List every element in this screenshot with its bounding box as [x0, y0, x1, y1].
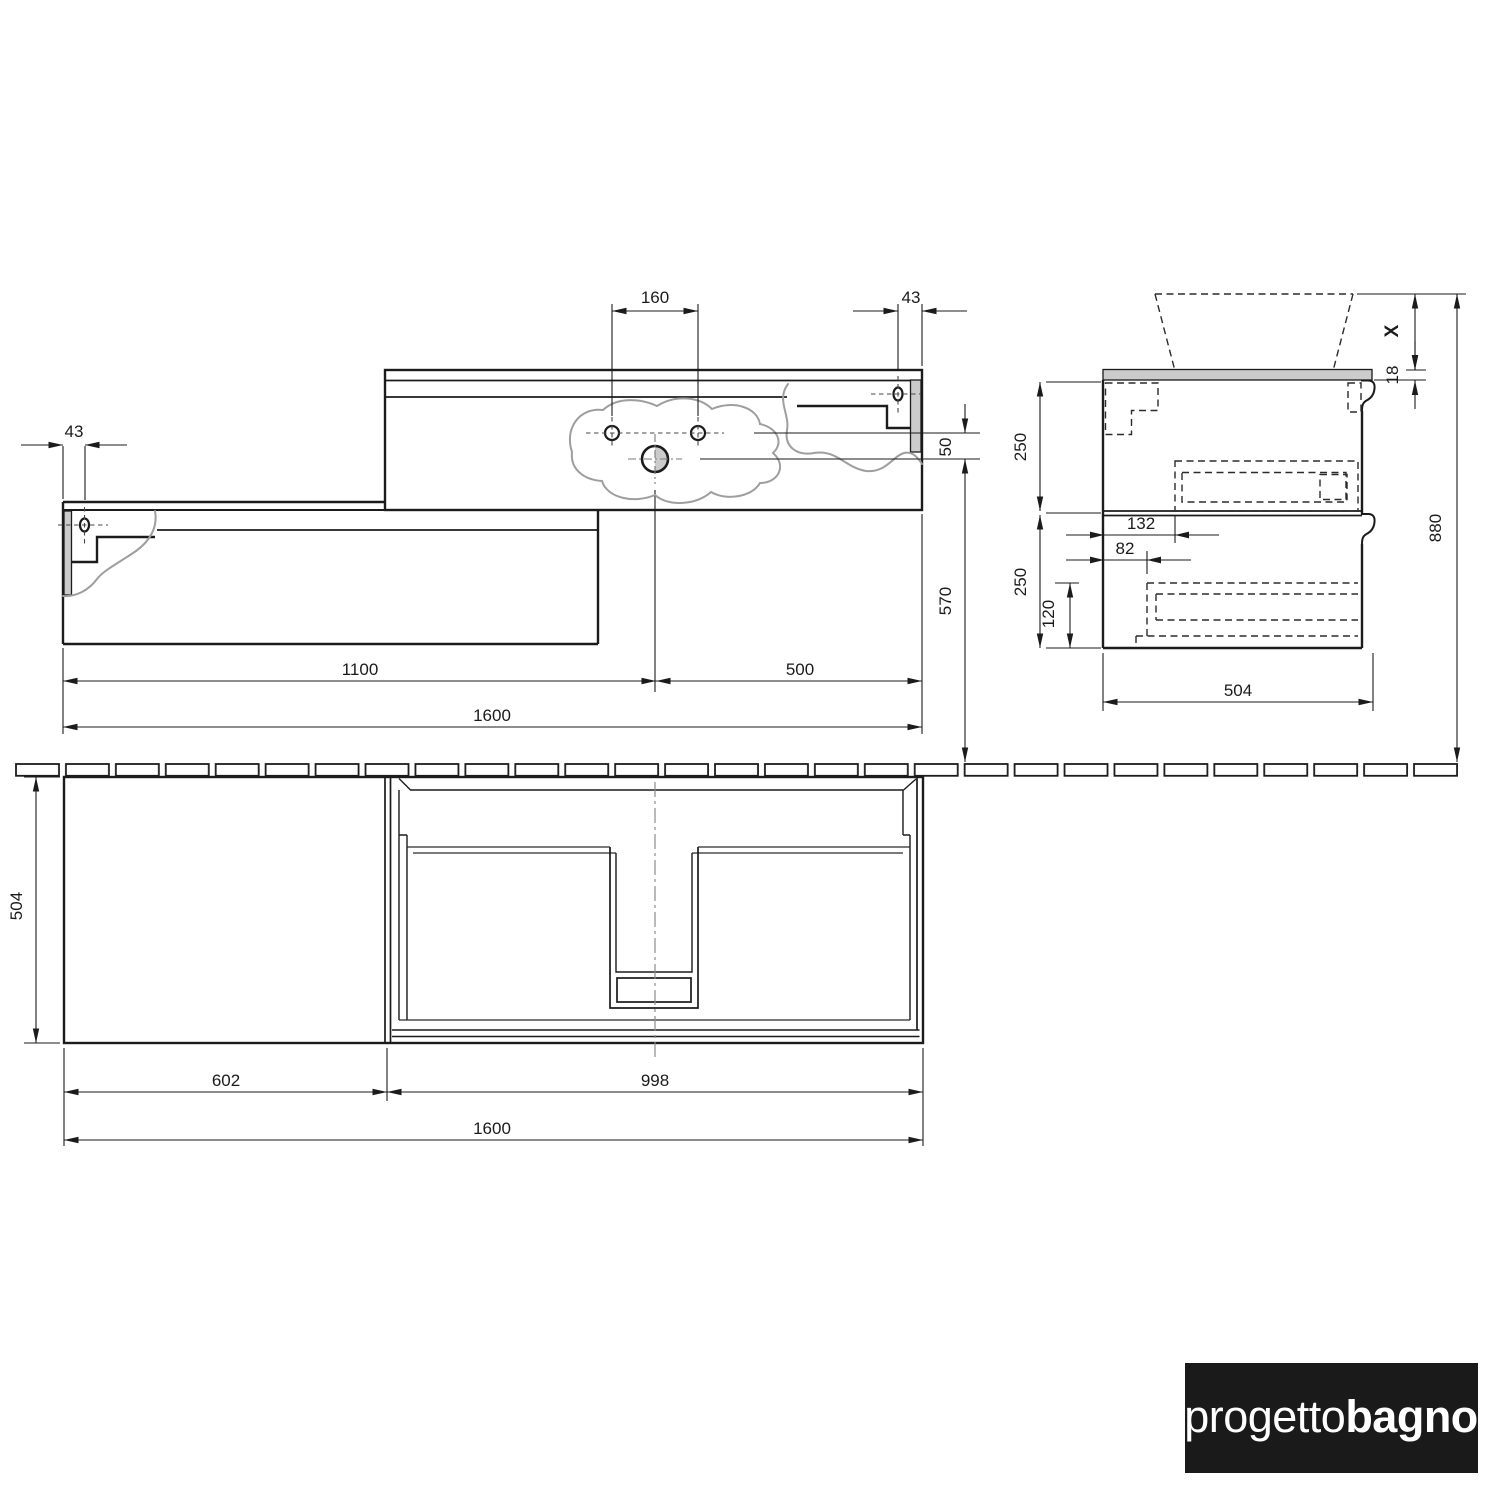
technical-drawing-sheet: 160 43 43 50 570 1100 500 1600: [0, 0, 1500, 1500]
dim-label-602: 602: [212, 1071, 240, 1090]
dim-label-18: 18: [1383, 366, 1402, 385]
dim-label-43-left: 43: [65, 422, 84, 441]
dim-label-43-right: 43: [902, 288, 921, 307]
dim-label-x: X: [1382, 324, 1403, 337]
wall-bracket-profile-right: [797, 406, 910, 428]
front-view: 160 43 43 50 570 1100 500 1600: [21, 288, 980, 762]
wall-tile-strip: [15, 763, 1463, 777]
handle-profile-top: [1361, 381, 1375, 412]
countertop-section: [1103, 370, 1372, 381]
basin-rim-left: [399, 779, 411, 1021]
dim-label-504-plan: 504: [7, 892, 26, 920]
dim-label-50: 50: [936, 438, 955, 457]
break-line-left: [63, 511, 156, 596]
logo: progettobagno: [1184, 1363, 1478, 1473]
break-line-blob: [570, 398, 780, 503]
dim-label-250-top: 250: [1011, 433, 1030, 461]
right-gable-section: [911, 380, 922, 452]
drain-recess: [617, 978, 691, 1002]
basin-bowl-outline: [610, 847, 698, 1008]
dim-label-250-bottom: 250: [1011, 568, 1030, 596]
vanity-technical-drawing: 160 43 43 50 570 1100 500 1600: [0, 0, 1500, 1500]
left-gable-section: [64, 511, 72, 595]
logo-wordmark: progettobagno: [1184, 1391, 1478, 1442]
plan-outline: [64, 777, 923, 1043]
dim-label-1100: 1100: [342, 660, 379, 679]
dim-label-880: 880: [1426, 514, 1445, 542]
side-view: 250 250 132 82 120 504 X 18 880: [1011, 294, 1466, 762]
logo-progetto: progetto: [1184, 1391, 1345, 1442]
dim-label-500: 500: [786, 660, 814, 679]
basin-rim-right: [903, 779, 916, 1020]
dim-label-160: 160: [641, 288, 669, 307]
dim-label-570: 570: [936, 587, 955, 615]
plan-view: 504 602 998 1600: [7, 763, 1463, 1146]
lower-drawer-box-hidden: [1136, 583, 1358, 647]
dim-label-504-side: 504: [1224, 681, 1252, 700]
upper-drawer-box-hidden: [1175, 461, 1358, 511]
logo-bagno: bagno: [1345, 1391, 1477, 1442]
dim-label-1600-plan: 1600: [473, 1119, 511, 1138]
siphon-recess-hidden: [1106, 383, 1159, 435]
washbasin-unit-outline: [385, 370, 922, 510]
basin-deck-lines: [407, 847, 910, 853]
dim-label-120: 120: [1039, 600, 1058, 628]
dim-label-1600-front: 1600: [473, 706, 511, 725]
dim-label-998: 998: [641, 1071, 669, 1090]
dim-label-132: 132: [1127, 514, 1155, 533]
handle-profile-bottom: [1361, 514, 1375, 544]
dim-label-82: 82: [1116, 539, 1135, 558]
